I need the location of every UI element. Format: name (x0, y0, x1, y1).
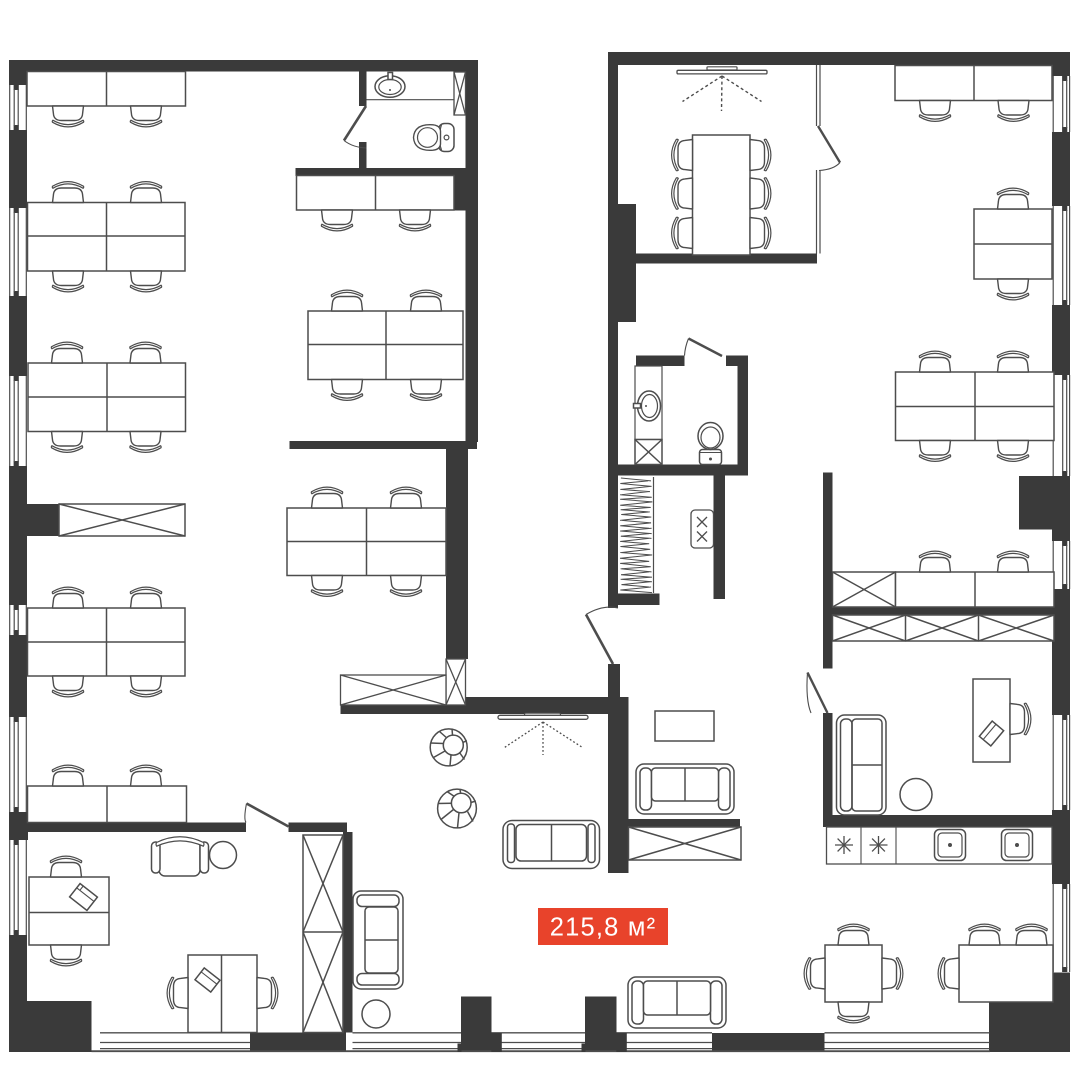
svg-text:215,8 м²: 215,8 м² (550, 914, 657, 942)
